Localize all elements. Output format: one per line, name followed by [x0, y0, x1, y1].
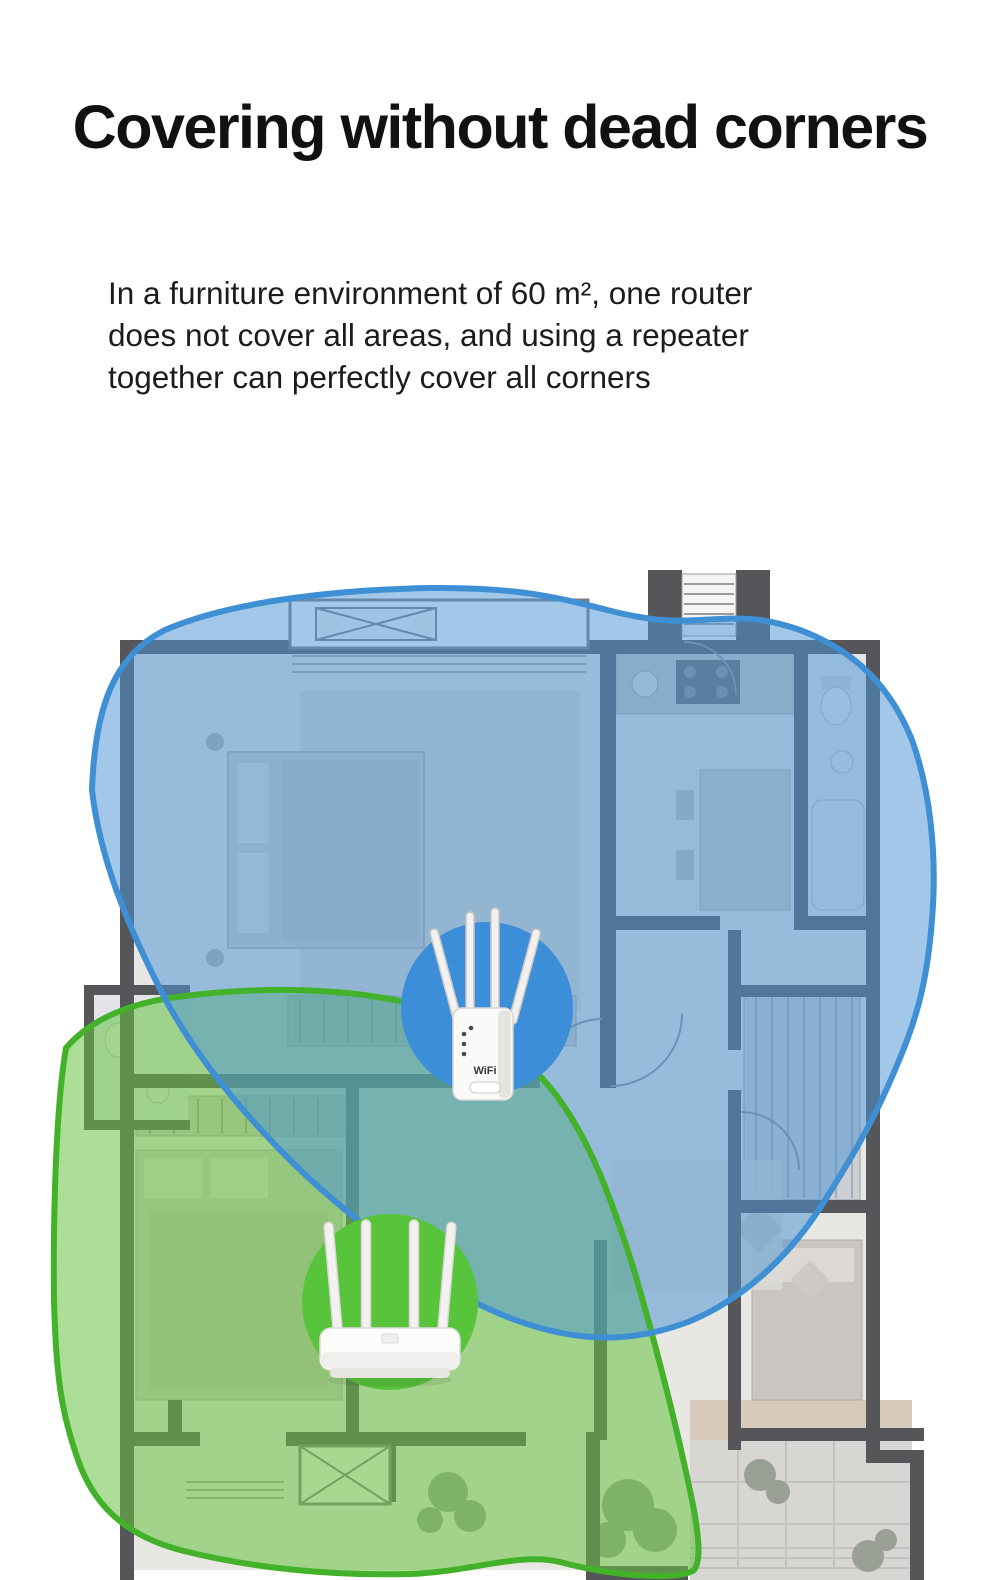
router-marker: [302, 1214, 478, 1390]
repeater-logo: WiFi: [473, 1065, 496, 1077]
coverage-illustration: WiFi: [0, 0, 1000, 1580]
floorplan-svg: WiFi: [0, 0, 1000, 1580]
